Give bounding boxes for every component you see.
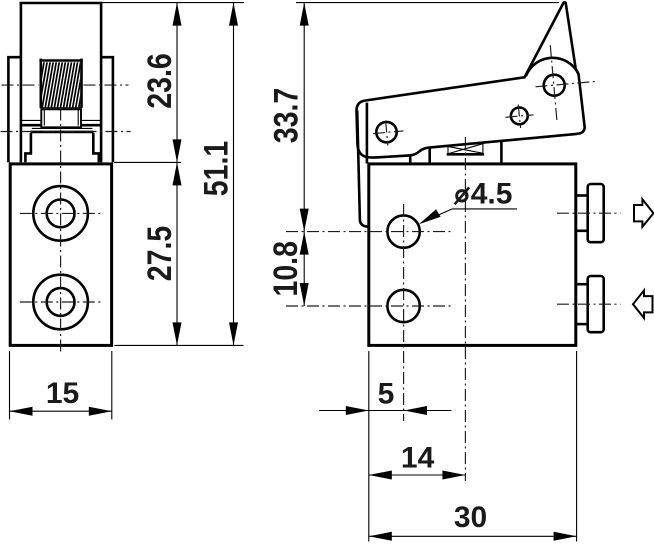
svg-text:27.5: 27.5 xyxy=(139,226,178,281)
svg-text:4.5: 4.5 xyxy=(471,177,513,210)
svg-text:15: 15 xyxy=(46,377,79,410)
svg-text:33.7: 33.7 xyxy=(266,88,305,143)
svg-text:5: 5 xyxy=(378,378,395,411)
svg-text:14: 14 xyxy=(401,442,435,475)
svg-text:23.6: 23.6 xyxy=(139,53,178,108)
svg-text:10.8: 10.8 xyxy=(265,241,304,296)
svg-text:30: 30 xyxy=(454,501,487,534)
svg-text:51.1: 51.1 xyxy=(196,141,235,196)
